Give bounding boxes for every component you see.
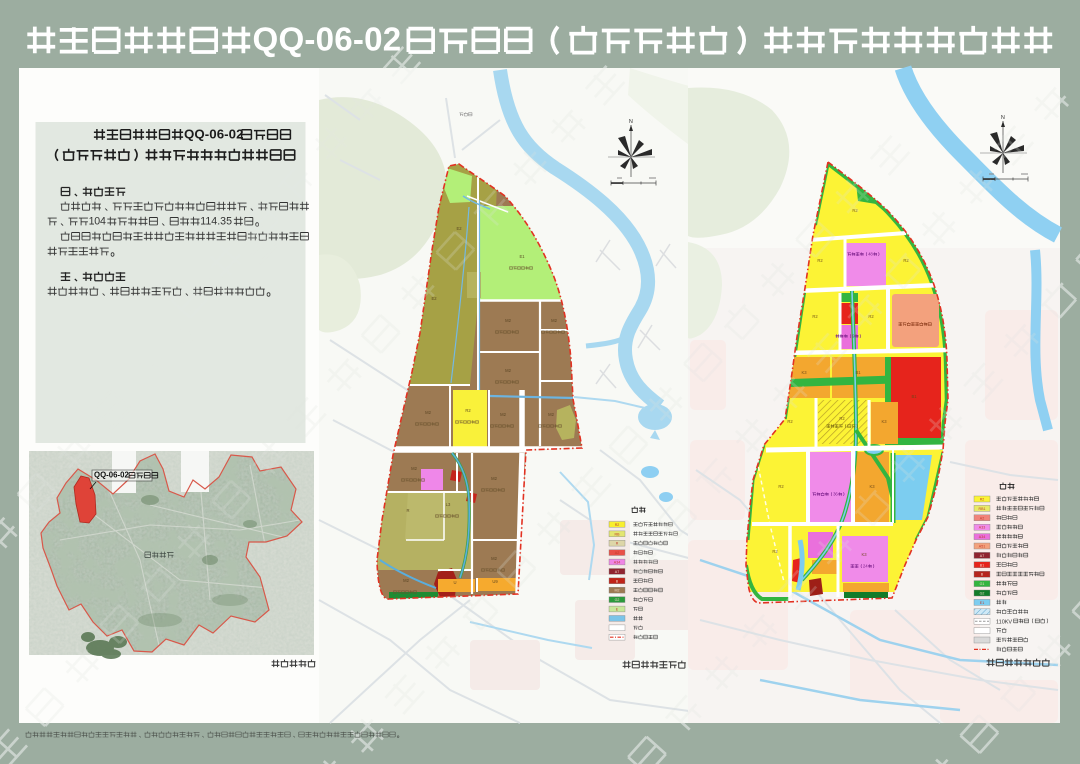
svg-text:24: 24 — [863, 563, 868, 568]
svg-text:R2: R2 — [465, 408, 471, 413]
svg-text:A34: A34 — [979, 535, 985, 539]
svg-text:R2: R2 — [839, 416, 845, 421]
svg-text:A2: A2 — [615, 551, 619, 555]
svg-text:R: R — [616, 542, 619, 546]
svg-text:114.35: 114.35 — [200, 216, 232, 228]
svg-text:A51: A51 — [979, 545, 985, 549]
svg-text:U: U — [453, 580, 456, 585]
svg-text:110KV: 110KV — [996, 620, 1012, 626]
svg-text:B1: B1 — [855, 370, 861, 375]
svg-text:104: 104 — [89, 216, 106, 228]
svg-text:R2: R2 — [778, 484, 784, 489]
svg-text:R2: R2 — [817, 258, 823, 263]
svg-text:M2: M2 — [491, 556, 497, 561]
svg-text:G1: G1 — [980, 582, 985, 586]
svg-text:QQ-06-02: QQ-06-02 — [184, 127, 244, 142]
svg-text:R2: R2 — [772, 549, 778, 554]
svg-text:K3: K3 — [861, 552, 867, 557]
svg-text:A7: A7 — [615, 570, 619, 574]
svg-text:M2: M2 — [403, 578, 409, 583]
svg-text:RB1: RB1 — [979, 507, 986, 511]
svg-text:R: R — [406, 508, 409, 513]
svg-text:K3: K3 — [881, 419, 887, 424]
svg-text:A34: A34 — [614, 561, 620, 565]
svg-text:A33: A33 — [979, 526, 985, 530]
svg-text:E1: E1 — [980, 601, 984, 605]
svg-text:N: N — [629, 119, 633, 125]
svg-text:R2: R2 — [980, 498, 985, 502]
svg-text:M2: M2 — [491, 476, 497, 481]
svg-text:RB: RB — [615, 532, 621, 536]
svg-text:N: N — [1001, 115, 1005, 121]
svg-text:M2: M2 — [505, 368, 511, 373]
svg-text:E1: E1 — [519, 254, 525, 259]
svg-text:QQ-06-02: QQ-06-02 — [253, 22, 402, 59]
svg-text:M2: M2 — [500, 412, 506, 417]
svg-text:K3: K3 — [801, 370, 807, 375]
svg-text:M2: M2 — [551, 318, 557, 323]
svg-text:A2: A2 — [980, 516, 984, 520]
svg-text:R2: R2 — [787, 419, 793, 424]
svg-text:L3: L3 — [446, 502, 451, 507]
svg-text:48: 48 — [868, 251, 873, 256]
svg-text:M2: M2 — [548, 412, 554, 417]
svg-text:G2: G2 — [615, 598, 620, 602]
svg-text:U9: U9 — [492, 579, 498, 584]
svg-text:E2: E2 — [431, 296, 437, 301]
svg-text:QQ-06-02: QQ-06-02 — [94, 471, 129, 480]
svg-text:36: 36 — [833, 491, 838, 496]
svg-text:A7: A7 — [980, 554, 984, 558]
svg-text:M2: M2 — [411, 466, 417, 471]
svg-text:M2: M2 — [615, 589, 620, 593]
svg-text:R2: R2 — [812, 314, 818, 319]
svg-text:K3: K3 — [869, 484, 875, 489]
svg-text:R2: R2 — [615, 523, 620, 527]
svg-text:B1: B1 — [911, 394, 917, 399]
svg-text:M2: M2 — [505, 318, 511, 323]
svg-text:E2: E2 — [456, 226, 462, 231]
svg-text:G2: G2 — [980, 592, 985, 596]
svg-text:M2: M2 — [425, 410, 431, 415]
svg-text:B1: B1 — [980, 563, 984, 567]
